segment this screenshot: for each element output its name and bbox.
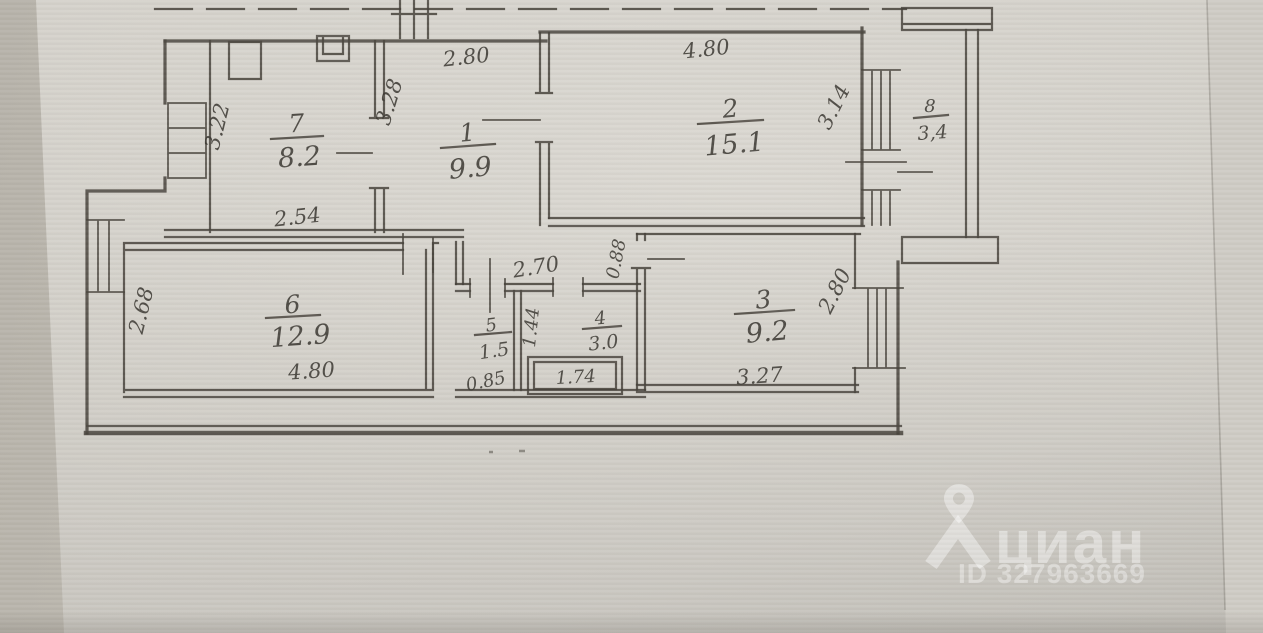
- room-5-number: 5: [484, 314, 498, 336]
- dim-room7-side: 3.22: [200, 101, 235, 152]
- room-labels: 7 8.2 1 9.9 2 15.1 8 3,4 6 12.9 5 1.5 4 …: [269, 93, 948, 364]
- room-4-number: 4: [593, 307, 608, 329]
- room-3-area: 9.2: [745, 315, 790, 350]
- closet-symbol: [229, 42, 261, 79]
- balcony-outline: [902, 8, 998, 263]
- ink-specks: [489, 451, 525, 452]
- dim-room2-side: 3.14: [812, 81, 855, 134]
- dim-room3-bottom: 3.27: [735, 362, 784, 389]
- floorplan-scan: 7 8.2 1 9.9 2 15.1 8 3,4 6 12.9 5 1.5 4 …: [0, 0, 1263, 633]
- dimension-ticks: [337, 120, 932, 259]
- dim-room5-bottom: 0.85: [464, 367, 508, 396]
- vent-shaft-symbol: [392, 0, 436, 38]
- room-3-number: 3: [754, 284, 772, 314]
- room-2-number: 2: [720, 93, 739, 123]
- room-8-area: 3,4: [917, 121, 949, 145]
- dim-room3-side: 2.80: [813, 265, 856, 318]
- watermark: циан ID 327963669: [931, 484, 1146, 589]
- watermark-id: ID 327963669: [958, 558, 1146, 589]
- dim-room7-bottom: 2.54: [272, 203, 322, 232]
- dim-bathtub: 1.74: [555, 366, 596, 389]
- room-7-area: 8.2: [277, 141, 322, 175]
- paper-fold-line: [1207, 0, 1225, 610]
- room-7-number: 7: [287, 108, 305, 138]
- dim-room6-bottom: 4.80: [286, 357, 335, 384]
- dim-room6-side: 2.68: [124, 285, 159, 337]
- dim-room1-side: 3.28: [371, 76, 408, 128]
- room-1-number: 1: [458, 117, 476, 147]
- room-8-number: 8: [924, 96, 935, 117]
- room-2-area: 15.1: [703, 126, 766, 162]
- dim-wall: 0.88: [602, 237, 630, 280]
- dim-room2-top: 4.80: [681, 35, 731, 64]
- floor-plan-drawing: 7 8.2 1 9.9 2 15.1 8 3,4 6 12.9 5 1.5 4 …: [0, 0, 1263, 633]
- room-6-area: 12.9: [269, 319, 331, 354]
- room-1-area: 9.9: [448, 151, 493, 186]
- dim-room4-side: 1.44: [519, 306, 544, 348]
- paper-bottom-shadow: [0, 611, 1263, 633]
- room-4-area: 3.0: [587, 331, 619, 356]
- room-6-number: 6: [283, 289, 301, 319]
- dim-room1-top: 2.80: [441, 43, 491, 72]
- room-5-area: 1.5: [478, 338, 511, 364]
